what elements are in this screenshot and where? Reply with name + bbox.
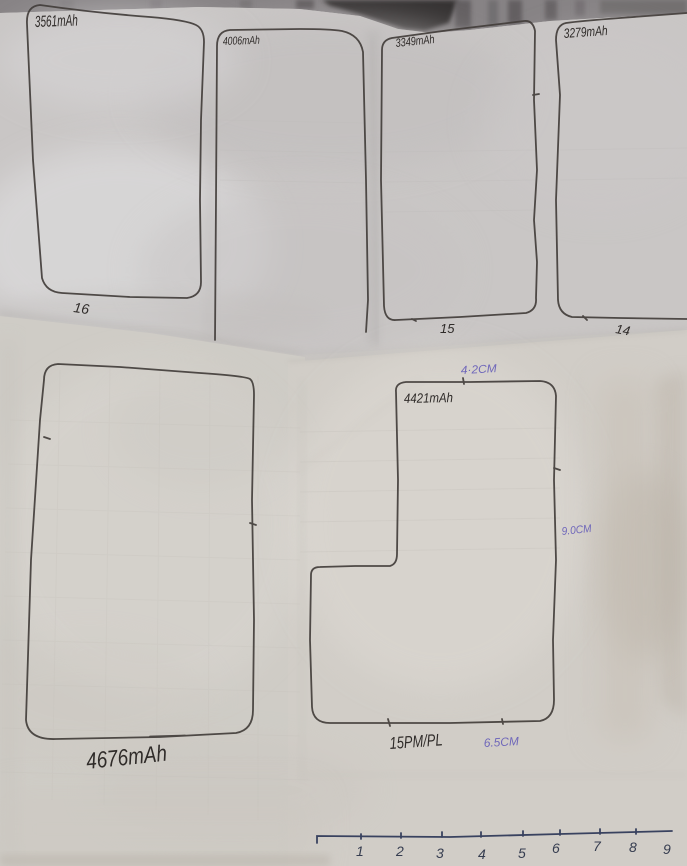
svg-text:6: 6 [552, 840, 560, 856]
svg-text:4421mAh: 4421mAh [404, 390, 453, 406]
svg-text:4: 4 [478, 846, 486, 862]
svg-text:4·2CM: 4·2CM [460, 363, 497, 377]
svg-text:1: 1 [356, 843, 364, 859]
svg-text:15: 15 [440, 321, 455, 336]
svg-text:8: 8 [629, 839, 637, 855]
svg-text:3279mAh: 3279mAh [563, 23, 608, 41]
svg-text:4006mAh: 4006mAh [223, 35, 260, 48]
svg-text:6.5CM: 6.5CM [483, 734, 519, 750]
svg-text:3: 3 [436, 845, 444, 861]
svg-text:7: 7 [593, 838, 602, 854]
svg-text:15PM/PL: 15PM/PL [389, 730, 443, 753]
svg-text:16: 16 [73, 299, 91, 317]
svg-text:9: 9 [663, 841, 671, 857]
svg-text:5: 5 [518, 845, 526, 861]
svg-text:2: 2 [395, 843, 404, 859]
svg-text:3561mAh: 3561mAh [35, 13, 79, 31]
svg-text:14: 14 [614, 321, 631, 338]
